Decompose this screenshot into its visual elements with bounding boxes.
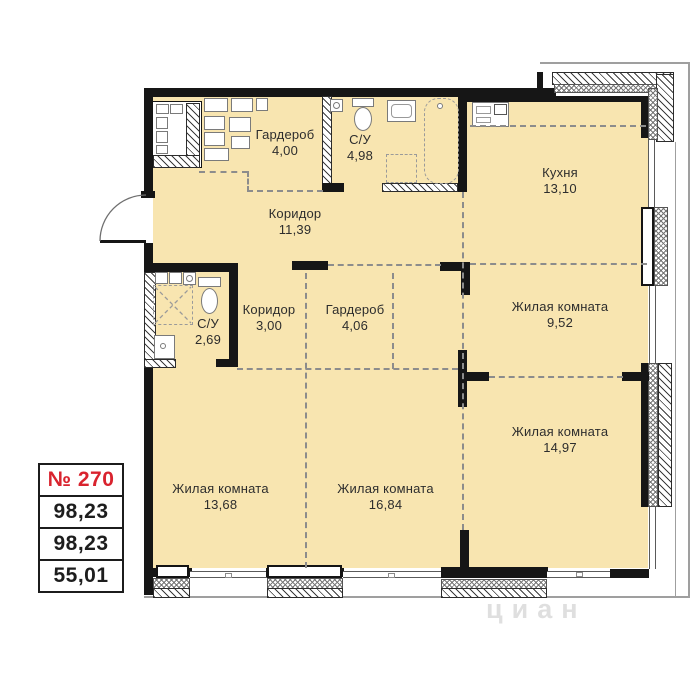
room-name: С/У: [320, 132, 400, 148]
room-area: 4,98: [320, 148, 400, 164]
room-label-corridor-main: Коридор 11,39: [235, 206, 355, 238]
watermark: циан: [486, 594, 686, 625]
room-area: 16,84: [313, 497, 458, 513]
unit-number: № 270: [40, 465, 122, 495]
room-name: Жилая комната: [148, 481, 293, 497]
room-name: С/У: [176, 316, 240, 332]
room-area: 2,69: [176, 332, 240, 348]
room-area: 11,39: [235, 222, 355, 238]
room-label-wardrobe-mid: Гардероб 4,06: [297, 302, 413, 334]
room-area: 13,68: [148, 497, 293, 513]
room-label-living-4: Жилая комната 16,84: [313, 481, 458, 513]
room-name: Жилая комната: [490, 424, 630, 440]
room-area: 14,97: [490, 440, 630, 456]
room-name: Коридор: [235, 206, 355, 222]
room-name: Жилая комната: [313, 481, 458, 497]
room-name: Жилая комната: [490, 299, 630, 315]
unit-total-area: 98,23: [40, 495, 122, 527]
unit-info-card: № 270 98,23 98,23 55,01: [38, 463, 124, 593]
unit-reduced-area: 98,23: [40, 527, 122, 559]
room-area: 9,52: [490, 315, 630, 331]
room-label-living-1: Жилая комната 9,52: [490, 299, 630, 331]
unit-living-area: 55,01: [40, 559, 122, 591]
room-area: 4,06: [297, 318, 413, 334]
room-label-bathroom-top: С/У 4,98: [320, 132, 400, 164]
floor-plan: Гардероб 4,00 С/У 4,98 Кухня 13,10 Корид…: [0, 0, 700, 700]
room-name: Гардероб: [297, 302, 413, 318]
room-name: Кухня: [500, 165, 620, 181]
room-label-bathroom-small: С/У 2,69: [176, 316, 240, 348]
room-label-living-3: Жилая комната 13,68: [148, 481, 293, 513]
room-label-kitchen: Кухня 13,10: [500, 165, 620, 197]
room-label-living-2: Жилая комната 14,97: [490, 424, 630, 456]
room-area: 13,10: [500, 181, 620, 197]
